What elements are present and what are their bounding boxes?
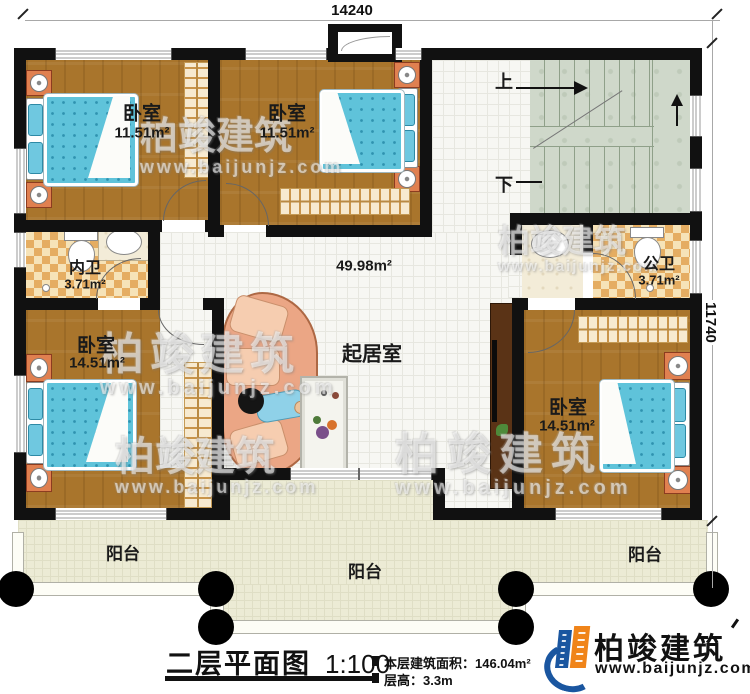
dimension-tick (711, 8, 722, 19)
window (690, 168, 702, 212)
pillow (28, 104, 43, 136)
footer-bullet (372, 656, 379, 666)
corridor-floor (432, 60, 530, 232)
wall (14, 298, 98, 310)
window (395, 48, 422, 60)
logo-url: www.baijunjz.com (595, 660, 750, 678)
wall (420, 48, 432, 237)
room-name: 卧室 (549, 393, 587, 420)
watermark: 柏竣建筑 www.baijunjz.com (395, 432, 632, 499)
balcony-label: 阳台 (628, 541, 662, 566)
column (198, 571, 234, 607)
lamp-icon (668, 470, 688, 490)
logo-icon (544, 624, 594, 684)
floor-drain (42, 284, 50, 292)
floor-plan: 柏竣建筑 www.baijunjz.com 柏竣建筑 www.baijunjz.… (0, 0, 750, 694)
room-area: 11.51m² (259, 125, 314, 142)
balcony-railing (12, 582, 220, 596)
balcony-railing (512, 582, 716, 596)
room-name: 卧室 (123, 99, 161, 126)
window (690, 240, 702, 294)
window (55, 508, 167, 520)
wall (575, 298, 702, 310)
stair-treads-lower (530, 146, 654, 213)
column (0, 571, 34, 607)
wardrobe (280, 188, 410, 215)
balcony-label: 阳台 (106, 540, 140, 565)
room-name: 卧室 (268, 99, 306, 126)
wall (512, 298, 528, 310)
watermark-url: www.baijunjz.com (115, 478, 318, 497)
room-area: 11.51m² (114, 125, 169, 142)
tv-screen (492, 340, 497, 422)
wall (14, 220, 162, 232)
lamp-icon (30, 74, 48, 92)
nightstand (26, 354, 52, 382)
watermark-text: 柏竣建筑 (395, 430, 603, 479)
window (555, 508, 662, 520)
window (14, 148, 26, 214)
window (55, 48, 172, 60)
dimension-height-label: 11740 (702, 300, 719, 345)
pillow (28, 388, 43, 420)
watermark: 柏竣建筑 www.baijunjz.com (498, 225, 659, 274)
watermark-text: 柏竣建筑 (100, 330, 300, 379)
window (245, 48, 327, 60)
sink-basin (106, 229, 142, 255)
stair-mid-line-1 (530, 126, 654, 127)
stair-small-arrow-head (671, 94, 683, 106)
watermark-url: www.baijunjz.com (395, 478, 632, 499)
stair-small-arrow-line (676, 104, 678, 126)
window (14, 375, 26, 453)
wall (266, 225, 432, 237)
dimension-line-top (25, 20, 720, 21)
window (14, 232, 26, 268)
lamp-icon (398, 66, 416, 84)
watermark-url: www.baijunjz.com (498, 259, 659, 275)
watermark: 柏竣建筑 www.baijunjz.com (115, 436, 318, 497)
room-name: 内卫 (69, 254, 101, 278)
lamp-icon (30, 468, 48, 488)
dimension-width-label: 14240 (320, 2, 384, 19)
pillow (28, 424, 43, 456)
wall (208, 225, 224, 237)
wardrobe (578, 316, 688, 343)
watermark-text: 柏竣建筑 (498, 223, 626, 259)
stair-down-line (516, 181, 542, 183)
window (690, 95, 702, 137)
stair-up-arrow-head (574, 81, 588, 95)
lamp-icon (30, 358, 48, 378)
room-area: 14.51m² (69, 355, 125, 372)
flower (327, 420, 337, 430)
nightstand (664, 352, 692, 380)
watermark: 柏竣建筑 www.baijunjz.com (100, 332, 337, 399)
pillow (28, 142, 43, 174)
room-area: 14.51m² (539, 418, 595, 435)
balcony-center-lower-floor (212, 584, 518, 622)
logo: 柏竣建筑 www.baijunjz.com (544, 622, 744, 686)
lamp-icon (668, 356, 688, 376)
lamp-icon (30, 186, 48, 204)
column (693, 571, 729, 607)
stairs-up-label: 上 (495, 68, 513, 94)
flower (313, 416, 321, 424)
stair-mid-line-2 (530, 146, 654, 147)
balcony-railing (210, 620, 520, 634)
lamp-icon (398, 170, 416, 188)
watermark-url: www.baijunjz.com (100, 378, 337, 399)
nightstand (26, 70, 52, 96)
logo-tick (731, 619, 739, 629)
watermark-text: 柏竣建筑 (115, 435, 275, 479)
stairs-down-label: 下 (495, 171, 513, 197)
column (198, 609, 234, 645)
column (498, 571, 534, 607)
stair-landing-divider (652, 60, 653, 213)
room-name: 卧室 (77, 331, 115, 358)
watermark-url: www.baijunjz.com (140, 158, 343, 177)
dimension-tick (17, 8, 28, 19)
stair-treads-upper (530, 60, 654, 126)
stair-up-arrow-line (516, 87, 576, 89)
sliding-door-break (358, 468, 360, 480)
balcony-label: 阳台 (348, 558, 382, 583)
room-name: 起居室 (342, 338, 402, 367)
title-underline (165, 676, 379, 681)
nightstand (394, 62, 420, 88)
column (498, 609, 534, 645)
floor-height-text: 层高：3.3m (384, 670, 453, 689)
wall (140, 298, 158, 310)
room-area: 3.71m² (638, 273, 679, 288)
room-area: 3.71m² (64, 277, 105, 292)
footer-bullet (372, 673, 379, 683)
room-name: 公卫 (643, 250, 675, 274)
room-area: 49.98m² (336, 258, 392, 275)
